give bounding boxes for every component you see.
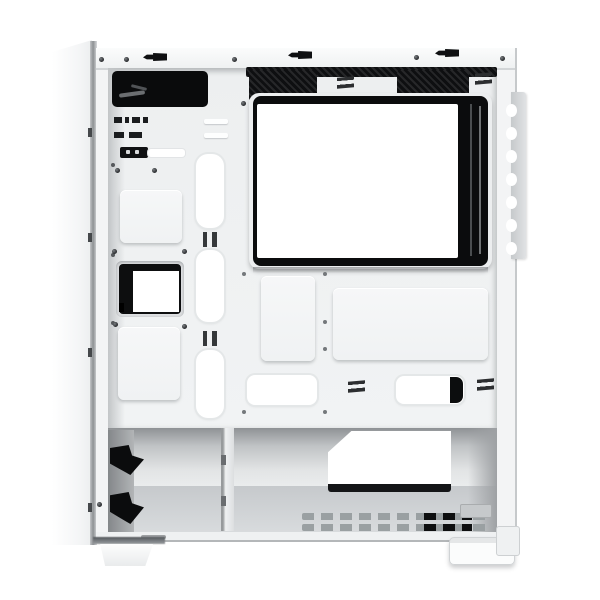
screw-head: [112, 249, 117, 254]
divider-mark: [221, 455, 226, 465]
bracket-notch: [506, 219, 517, 232]
standoff-dot: [242, 272, 246, 276]
latch-dot: [126, 150, 130, 154]
pc-case-photo: [0, 0, 600, 600]
seam-rivet: [88, 233, 92, 242]
basement-divider: [221, 428, 234, 531]
screw-head: [113, 322, 118, 327]
window-frame-stripe: [479, 106, 481, 254]
screw-head: [99, 57, 104, 62]
ssd-plate: [120, 190, 182, 243]
standoff-dot: [323, 410, 327, 414]
rear-bracket-strip: [511, 92, 526, 259]
drive-bay-opening: [133, 271, 179, 312]
bracket-notch: [506, 173, 517, 186]
screw-head: [232, 57, 237, 62]
floor-vent-dark: [424, 524, 472, 531]
screw-head: [500, 56, 505, 61]
routing-slot: [247, 375, 317, 405]
io-header-row: [114, 117, 148, 123]
seam-rivet: [88, 128, 92, 137]
bracket-notch: [506, 127, 517, 140]
standoff-dot: [323, 272, 327, 276]
basement: [108, 428, 497, 532]
psu-opening: [328, 431, 451, 487]
rear-corner-bracket: [496, 526, 520, 556]
grommet-mark: [203, 232, 217, 247]
front-panel: [52, 40, 92, 545]
routing-slot-dark: [450, 377, 463, 403]
latch-dot: [135, 150, 139, 154]
basement-bracket: [460, 504, 492, 518]
cable-grommet: [196, 154, 224, 228]
drive-bay-tab: [119, 303, 124, 312]
mount-panel: [333, 288, 488, 360]
screw-head: [152, 168, 157, 173]
routing-slot-mark: [348, 380, 365, 392]
tray-window-opening: [257, 104, 458, 258]
tray-rivet: [111, 163, 115, 167]
screw-head: [182, 324, 187, 329]
seam-rivet: [88, 503, 92, 512]
screw-head: [241, 101, 246, 106]
front-io-cutout: [112, 71, 208, 107]
cable-grommet: [196, 250, 224, 322]
screw-head: [414, 55, 419, 60]
vent-slot-mark: [475, 72, 492, 84]
psu-opening-edge: [328, 484, 451, 492]
slide-latch: [120, 147, 148, 158]
screw-head: [115, 168, 120, 173]
standoff-dot: [323, 320, 327, 324]
vent-slot-mark: [337, 76, 354, 88]
routing-slot-mark: [477, 378, 494, 390]
window-frame-stripe: [470, 104, 472, 256]
screw-head: [124, 57, 129, 62]
foot-shadow: [93, 537, 165, 544]
cable-grommet: [196, 350, 224, 418]
window-bottom-shadow: [253, 267, 488, 273]
embossed-marks: [204, 133, 228, 138]
bracket-notch: [506, 196, 517, 209]
grommet-mark: [203, 331, 217, 346]
divider-mark: [221, 496, 226, 506]
screw-head: [182, 249, 187, 254]
standoff-dot: [242, 410, 246, 414]
case-foot-front: [98, 544, 153, 566]
bracket-notch: [506, 150, 517, 163]
embossed-marks: [204, 119, 228, 124]
standoff-dot: [323, 347, 327, 351]
mount-panel: [261, 276, 315, 361]
io-header-row: [114, 132, 142, 138]
screw-head: [97, 502, 102, 507]
seam-rivet: [88, 348, 92, 357]
latch-slot: [148, 149, 185, 157]
ssd-plate: [118, 327, 180, 400]
bracket-notch: [506, 104, 517, 117]
bracket-notch: [506, 242, 517, 255]
